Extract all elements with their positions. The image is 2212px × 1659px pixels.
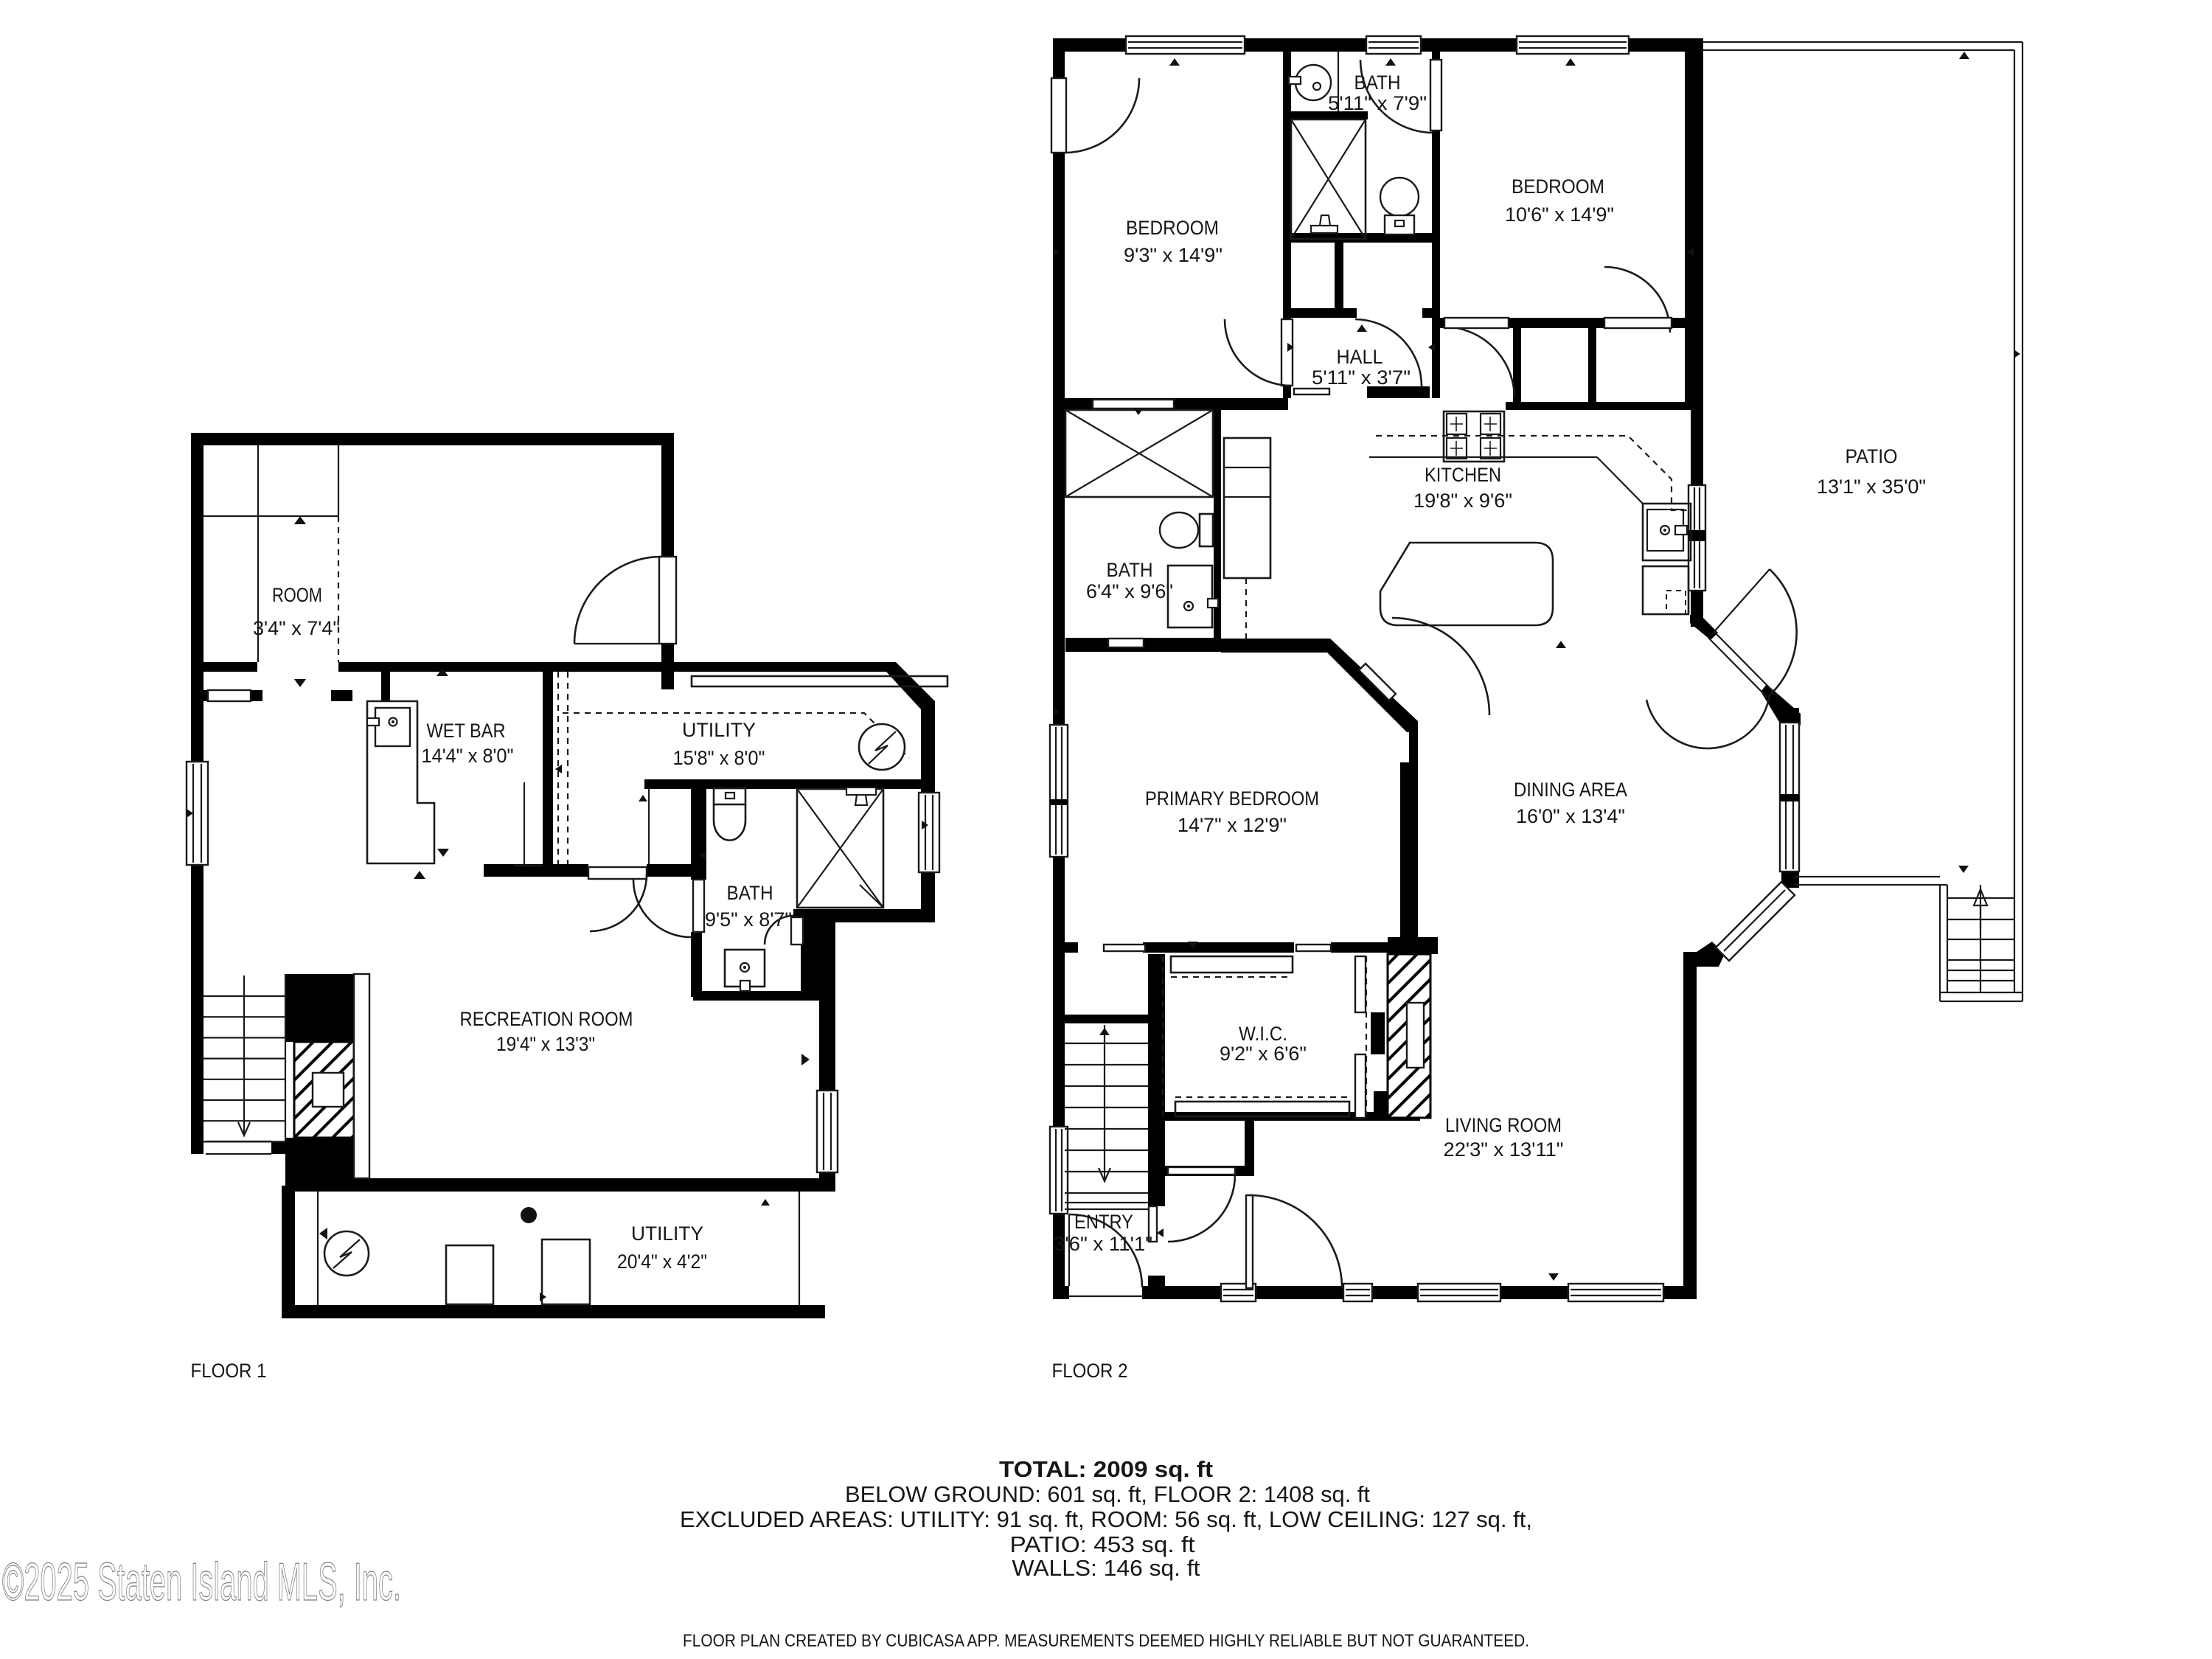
- svg-text:14'7" x 12'9": 14'7" x 12'9": [1178, 814, 1287, 836]
- svg-text:9'3" x 14'9": 9'3" x 14'9": [1124, 244, 1222, 266]
- svg-text:10'6" x 14'9": 10'6" x 14'9": [1505, 204, 1614, 226]
- svg-text:LIVING ROOM: LIVING ROOM: [1445, 1114, 1562, 1136]
- svg-text:UTILITY: UTILITY: [631, 1222, 703, 1245]
- svg-text:WALLS: 146 sq. ft: WALLS: 146 sq. ft: [1012, 1555, 1200, 1581]
- svg-text:BATH: BATH: [727, 882, 773, 904]
- svg-text:14'4" x 8'0": 14'4" x 8'0": [422, 745, 514, 767]
- svg-text:HALL: HALL: [1337, 346, 1383, 368]
- svg-text:19'4" x 13'3": 19'4" x 13'3": [496, 1033, 595, 1055]
- svg-text:BEDROOM: BEDROOM: [1512, 175, 1604, 198]
- svg-text:EXCLUDED AREAS: UTILITY: 91 sq: EXCLUDED AREAS: UTILITY: 91 sq. ft, ROOM…: [680, 1506, 1532, 1532]
- svg-text:22'3" x 13'11": 22'3" x 13'11": [1444, 1138, 1564, 1161]
- svg-text:PRIMARY BEDROOM: PRIMARY BEDROOM: [1145, 787, 1319, 810]
- svg-text:3'4" x 7'4": 3'4" x 7'4": [253, 617, 340, 639]
- svg-text:ROOM: ROOM: [272, 584, 322, 606]
- svg-text:BATH: BATH: [1354, 72, 1401, 94]
- svg-text:PATIO: PATIO: [1846, 445, 1898, 467]
- svg-text:13'1" x 35'0": 13'1" x 35'0": [1817, 476, 1926, 498]
- svg-text:9'2" x 6'6": 9'2" x 6'6": [1220, 1043, 1307, 1065]
- svg-text:20'4" x 4'2": 20'4" x 4'2": [617, 1251, 707, 1273]
- svg-text:W.I.C.: W.I.C.: [1239, 1023, 1287, 1045]
- svg-text:BELOW GROUND: 601 sq. ft, FLOO: BELOW GROUND: 601 sq. ft, FLOOR 2: 1408 …: [845, 1481, 1370, 1507]
- svg-text:FLOOR PLAN CREATED BY CUBICASA: FLOOR PLAN CREATED BY CUBICASA APP. MEAS…: [683, 1631, 1529, 1651]
- svg-text:TOTAL: 2009 sq. ft: TOTAL: 2009 sq. ft: [999, 1456, 1213, 1482]
- svg-text:ENTRY: ENTRY: [1074, 1211, 1133, 1233]
- svg-text:19'8" x 9'6": 19'8" x 9'6": [1413, 490, 1512, 512]
- svg-text:BATH: BATH: [1107, 559, 1153, 581]
- svg-text:©2025 Staten Island MLS, Inc.: ©2025 Staten Island MLS, Inc.: [2, 1553, 401, 1612]
- svg-text:WET BAR: WET BAR: [427, 720, 506, 742]
- svg-text:9'5" x 8'7": 9'5" x 8'7": [705, 908, 792, 931]
- svg-text:3'6" x 11'1": 3'6" x 11'1": [1054, 1233, 1152, 1255]
- svg-text:FLOOR 2: FLOOR 2: [1052, 1360, 1128, 1382]
- svg-text:6'4" x 9'6": 6'4" x 9'6": [1086, 580, 1173, 602]
- svg-text:5'11" x 3'7": 5'11" x 3'7": [1312, 366, 1411, 389]
- svg-text:16'0" x 13'4": 16'0" x 13'4": [1516, 805, 1625, 827]
- svg-text:RECREATION ROOM: RECREATION ROOM: [460, 1008, 633, 1030]
- svg-text:UTILITY: UTILITY: [682, 719, 756, 741]
- svg-text:FLOOR 1: FLOOR 1: [191, 1360, 267, 1382]
- svg-text:15'8" x 8'0": 15'8" x 8'0": [673, 747, 765, 769]
- svg-text:5'11" x 7'9": 5'11" x 7'9": [1328, 92, 1427, 114]
- svg-text:BEDROOM: BEDROOM: [1126, 217, 1219, 239]
- svg-text:PATIO: 453 sq. ft: PATIO: 453 sq. ft: [1010, 1531, 1195, 1557]
- svg-text:KITCHEN: KITCHEN: [1425, 464, 1501, 486]
- svg-text:DINING AREA: DINING AREA: [1514, 779, 1627, 801]
